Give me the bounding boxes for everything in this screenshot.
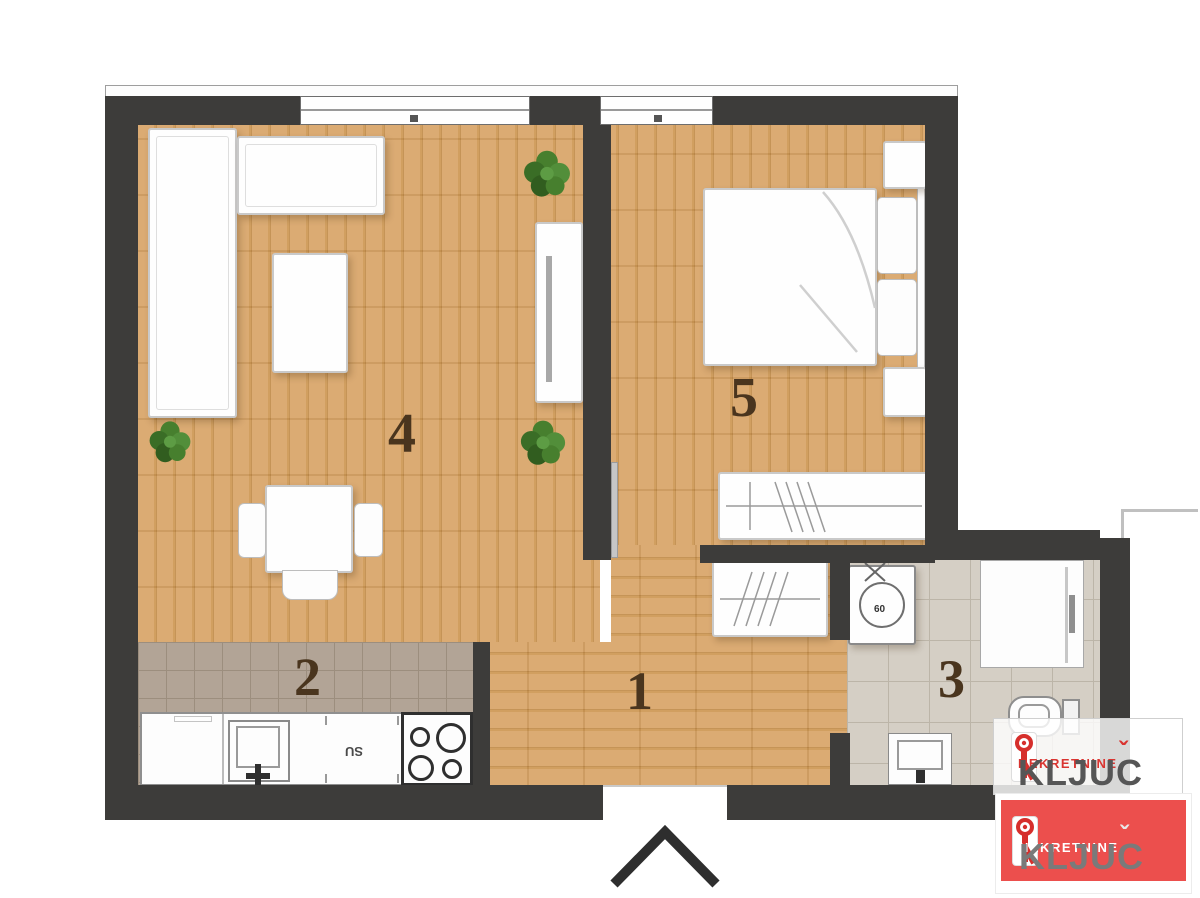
dining-chair-left — [238, 503, 266, 558]
brand-name-main-c: C — [1117, 836, 1144, 877]
sink-tap — [916, 770, 925, 783]
plant-icon — [146, 416, 194, 470]
counter-dash — [397, 774, 399, 783]
brand-name-main: KLJU — [1018, 752, 1116, 793]
pillow — [877, 197, 917, 274]
plant-icon — [520, 140, 574, 210]
agency-logo-card: NEKRETNINE KLJUˇC — [995, 793, 1192, 894]
room-label-hallway: 1 — [626, 664, 653, 718]
shower-column — [1069, 595, 1075, 633]
nightstand-top — [883, 141, 927, 189]
top-wall-pier — [530, 96, 600, 125]
sofa-top-section — [237, 136, 385, 215]
room-label-bedroom: 5 — [730, 370, 758, 426]
room-label-living: 4 — [388, 406, 416, 462]
hanger-hatch-marks — [714, 562, 826, 635]
drainer-line — [174, 716, 212, 722]
room-label-bathroom: 3 — [938, 652, 965, 706]
shower-glass — [1065, 567, 1068, 663]
burner-small — [410, 727, 430, 747]
coffee-table — [272, 253, 348, 373]
kitchen-stub-wall — [473, 642, 490, 785]
agency-logo: NEKRETNINE KLJUˇC — [1001, 800, 1186, 881]
burner-small — [442, 759, 462, 779]
left-wall — [105, 96, 138, 785]
bedroom-window — [600, 96, 713, 125]
headboard — [917, 186, 925, 368]
divider-wall — [583, 125, 611, 560]
living-room-window — [300, 96, 530, 125]
agency-watermark: NEKRETNINE KLJUˇC — [993, 718, 1183, 795]
bedroom-wardrobe — [718, 472, 930, 540]
entrance-arrow-icon — [600, 822, 730, 892]
counter-divider — [222, 714, 224, 784]
bed — [703, 188, 877, 366]
bottom-wall-left — [105, 785, 603, 820]
counter-dash — [325, 716, 327, 725]
stove — [401, 712, 473, 786]
burner-large — [408, 755, 434, 781]
shower — [980, 560, 1084, 668]
washing-machine: 60 — [848, 565, 916, 645]
hanger-hatch-marks — [720, 474, 928, 538]
sofa-left-section — [148, 128, 237, 418]
dishwasher-label: SU — [334, 744, 374, 759]
brand-name-main: KLJU — [1019, 836, 1117, 877]
water-valve-icon — [862, 561, 888, 583]
bathroom-left-wall-upper — [830, 558, 850, 640]
brand-name-main-c: C — [1116, 752, 1143, 793]
exterior-contour-h — [1124, 509, 1198, 512]
top-wall-right — [713, 96, 958, 125]
pillow — [877, 279, 917, 356]
bedroom-right-wall — [925, 96, 958, 560]
nightstand-bottom — [883, 367, 927, 417]
exterior-contour-v — [1121, 509, 1124, 541]
sliding-door-leaf — [611, 462, 618, 558]
dining-chair-right — [354, 503, 383, 557]
tv-stand — [535, 222, 583, 403]
dining-chair-bottom — [282, 570, 338, 600]
room-label-kitchen: 2 — [294, 650, 321, 704]
duvet-fold-lines — [705, 190, 879, 368]
bathroom-sink — [888, 733, 952, 785]
counter-dash — [397, 716, 399, 725]
plant-icon — [516, 418, 570, 470]
bathroom-top-wall — [935, 530, 1100, 560]
dining-table — [265, 485, 353, 573]
bedroom-bottom-wall — [700, 545, 935, 563]
washer-size-label: 60 — [874, 605, 885, 615]
entrance-opening — [603, 785, 727, 820]
floor-plan: 60 SU 1 2 — [0, 0, 1200, 898]
kitchen-sink — [228, 720, 290, 782]
burner-large — [436, 723, 466, 753]
tv-screen — [546, 256, 552, 382]
hallway-closet — [712, 560, 828, 637]
counter-dash — [325, 774, 327, 783]
bathroom-left-wall-lower — [830, 733, 850, 785]
sink-basin — [897, 740, 943, 770]
